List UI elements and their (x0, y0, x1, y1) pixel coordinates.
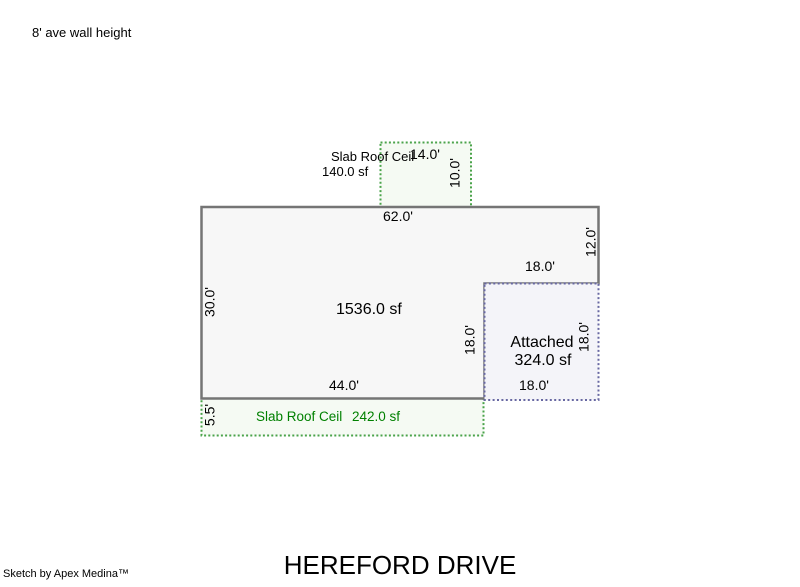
top-slab-label: Slab Roof Ceil (331, 150, 414, 164)
bottom-slab-label: Slab Roof Ceil (256, 410, 342, 425)
attached-right-dim: 18.0' (576, 322, 591, 352)
attached-name-label: Attached (510, 334, 573, 352)
main-left-dim: 30.0' (202, 287, 217, 317)
top-slab-area: 140.0 sf (322, 165, 368, 179)
attached-bottom-dim: 18.0' (519, 378, 549, 393)
top-slab-depth-dim: 10.0' (447, 158, 462, 188)
bottom-slab-outline (202, 399, 484, 436)
main-notch-top-dim: 18.0' (525, 259, 555, 274)
top-slab-width-dim: 14.0' (410, 147, 440, 162)
main-notch-side-dim: 18.0' (462, 325, 477, 355)
sketch-credit: Sketch by Apex Medina™ (3, 568, 129, 580)
wall-height-note: 8' ave wall height (32, 26, 131, 40)
attached-area-label: 324.0 sf (515, 352, 572, 370)
main-right-dim: 12.0' (583, 227, 598, 257)
main-area-label: 1536.0 sf (336, 301, 402, 319)
main-bottom-dim: 44.0' (329, 378, 359, 393)
floorplan-sketch: 8' ave wall height Slab Roof Ceil 140.0 … (0, 0, 800, 587)
bottom-slab-area: 242.0 sf (352, 410, 400, 425)
bottom-slab-left-dim: 5.5' (202, 404, 217, 426)
main-top-dim: 62.0' (383, 209, 413, 224)
floorplan-shapes (0, 0, 800, 587)
